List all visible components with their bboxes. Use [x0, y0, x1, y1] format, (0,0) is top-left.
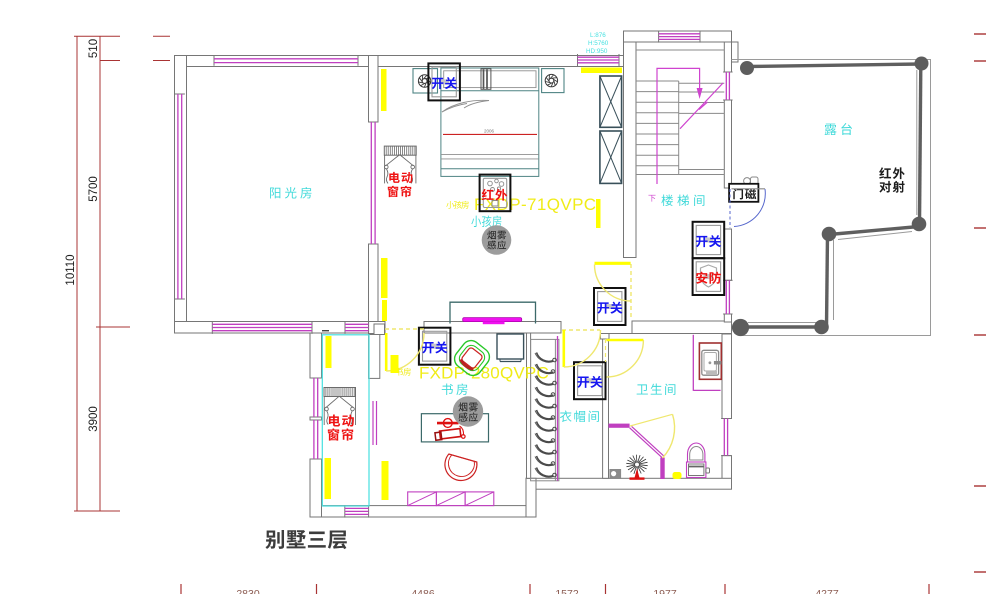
- svg-text:10110: 10110: [65, 254, 77, 285]
- svg-text:HD:950: HD:950: [586, 48, 608, 55]
- svg-text:510: 510: [88, 39, 100, 58]
- svg-text:H:5760: H:5760: [588, 40, 609, 47]
- svg-text:1572: 1572: [555, 588, 579, 594]
- svg-text:4277: 4277: [815, 588, 839, 594]
- svg-text:L:876: L:876: [590, 32, 606, 39]
- svg-text:5700: 5700: [88, 176, 100, 202]
- svg-text:2830: 2830: [236, 588, 260, 594]
- svg-text:2006: 2006: [484, 129, 495, 134]
- svg-text:1977: 1977: [653, 588, 677, 594]
- svg-text:3900: 3900: [88, 406, 100, 432]
- svg-text:4486: 4486: [411, 588, 435, 594]
